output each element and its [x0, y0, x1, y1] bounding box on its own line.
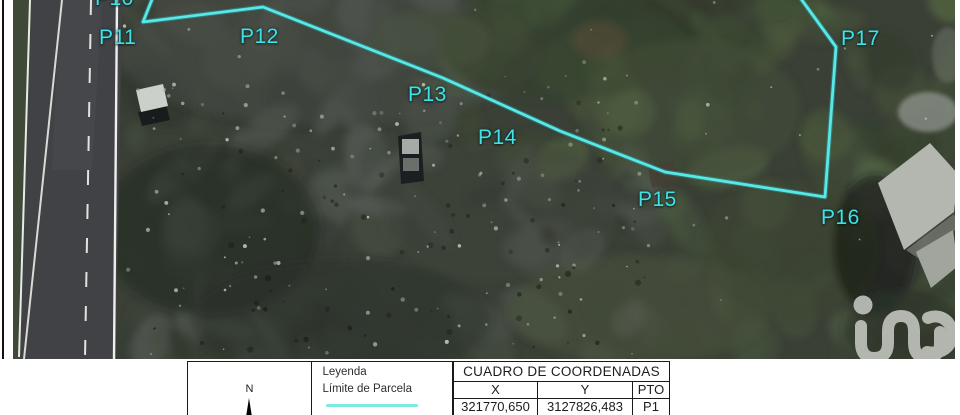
north-arrow-box: N	[187, 361, 312, 415]
legend-box: Leyenda Límite de Parcela	[311, 361, 454, 415]
column-header-x: X	[454, 382, 538, 398]
north-label: N	[188, 383, 311, 395]
north-arrow-icon	[246, 398, 252, 415]
coordinates-table-header-row: X Y PTO	[454, 382, 669, 399]
coordinates-table-row: 321770,650 3127826,483 P1	[454, 399, 669, 415]
coordinate-x-value: 321770,650	[454, 399, 538, 415]
column-header-pto: PTO	[633, 382, 669, 398]
bottom-panel: N Leyenda Límite de Parcela CUADRO DE CO…	[0, 359, 960, 415]
legend-title: Leyenda	[323, 366, 367, 378]
coordinate-y-value: 3127826,483	[538, 399, 633, 415]
column-header-y: Y	[538, 382, 633, 398]
listing-map-figure: P10P11P12P13P14P15P16P17 N Leyenda Límit…	[0, 0, 960, 415]
coordinates-table-title: CUADRO DE COORDENADAS	[454, 362, 669, 382]
road	[13, 0, 122, 359]
parcel-limit-line-sample	[326, 404, 418, 407]
frame-border-left	[2, 0, 4, 415]
point-id-value: P1	[633, 399, 669, 415]
aerial-photo: P10P11P12P13P14P15P16P17	[13, 0, 955, 359]
legend-item-label: Límite de Parcela	[323, 383, 413, 395]
aerial-photo-canvas	[13, 0, 955, 359]
coordinates-table: CUADRO DE COORDENADAS X Y PTO 321770,650…	[453, 361, 670, 415]
